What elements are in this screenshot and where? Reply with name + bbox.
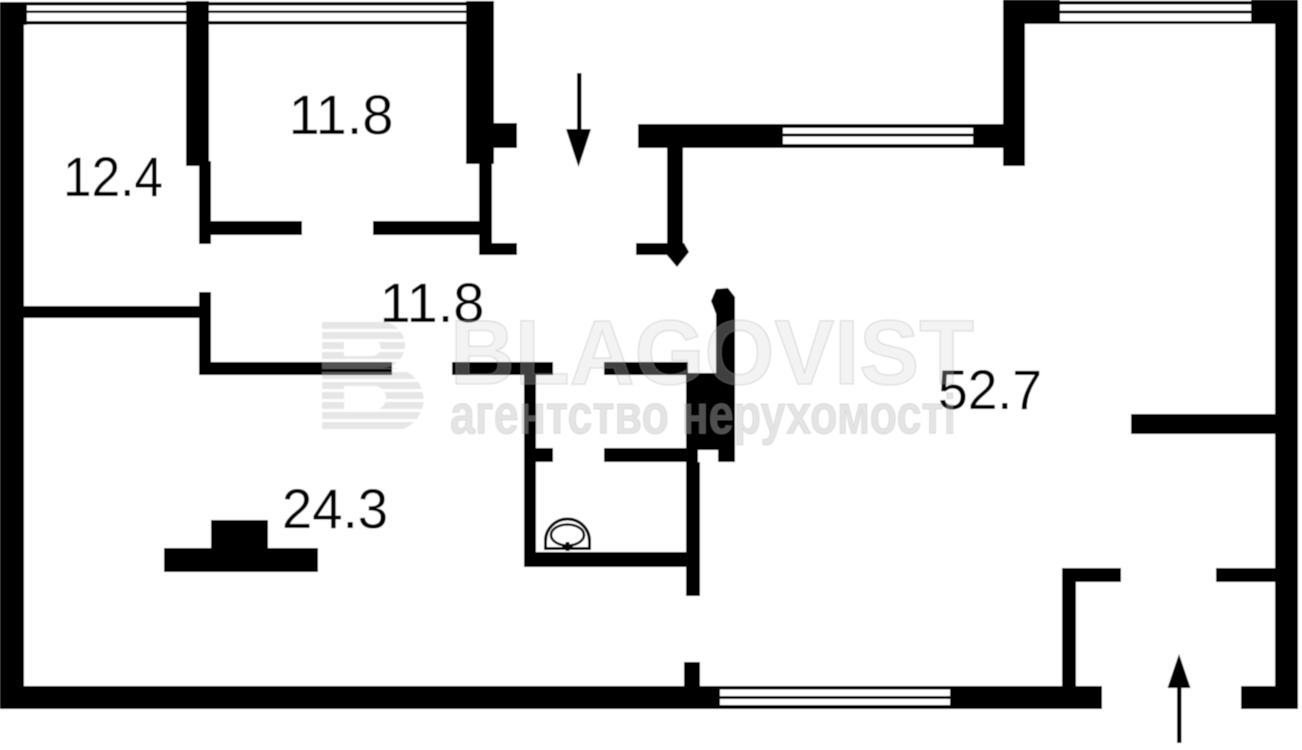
svg-text:агентство нерухомості: агентство нерухомості — [450, 383, 956, 446]
svg-text:11.8: 11.8 — [289, 83, 394, 146]
svg-text:24.3: 24.3 — [282, 477, 388, 540]
svg-text:12.4: 12.4 — [63, 145, 163, 208]
